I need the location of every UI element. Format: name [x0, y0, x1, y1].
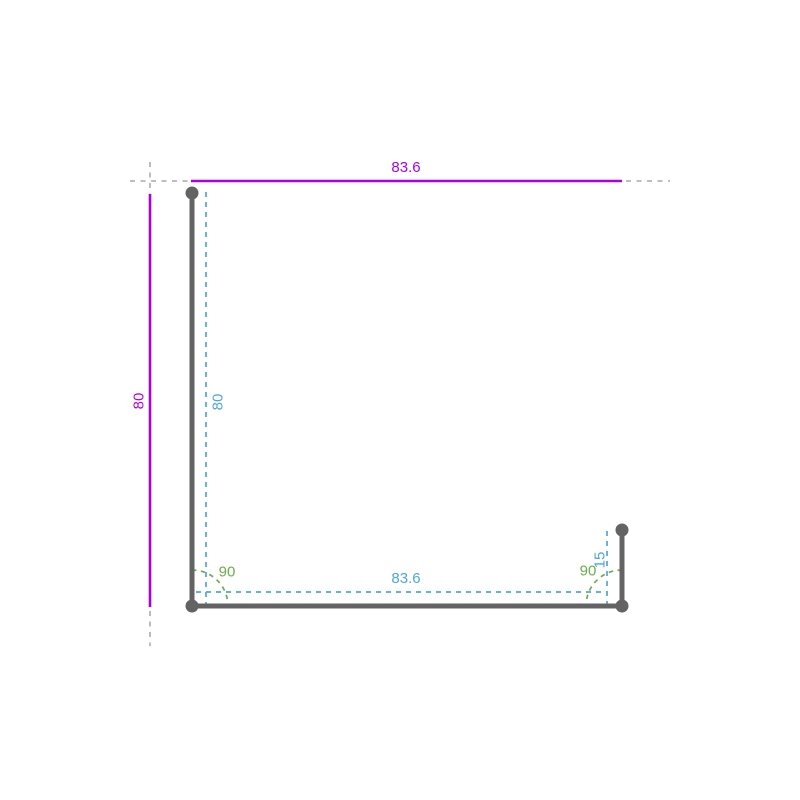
profile-drawing: 83.6 80 80 83.6 15 90 90 — [0, 0, 800, 800]
profile-vertex-bottom-left[interactable] — [186, 600, 199, 613]
leg-height-label: 80 — [210, 394, 227, 411]
profile-vertex-lip-top[interactable] — [616, 524, 629, 537]
angle-right-label: 90 — [580, 563, 597, 580]
profile-sketch-canvas: 83.6 80 80 83.6 15 90 90 — [0, 0, 800, 800]
profile-vertex-bottom-right[interactable] — [616, 600, 629, 613]
profile-path — [192, 193, 622, 606]
angle-left-label: 90 — [219, 564, 236, 581]
overall-width-label: 83.6 — [391, 159, 420, 176]
profile-vertex-top-left[interactable] — [186, 187, 199, 200]
bottom-width-label: 83.6 — [391, 570, 420, 587]
overall-height-label: 80 — [131, 393, 148, 410]
